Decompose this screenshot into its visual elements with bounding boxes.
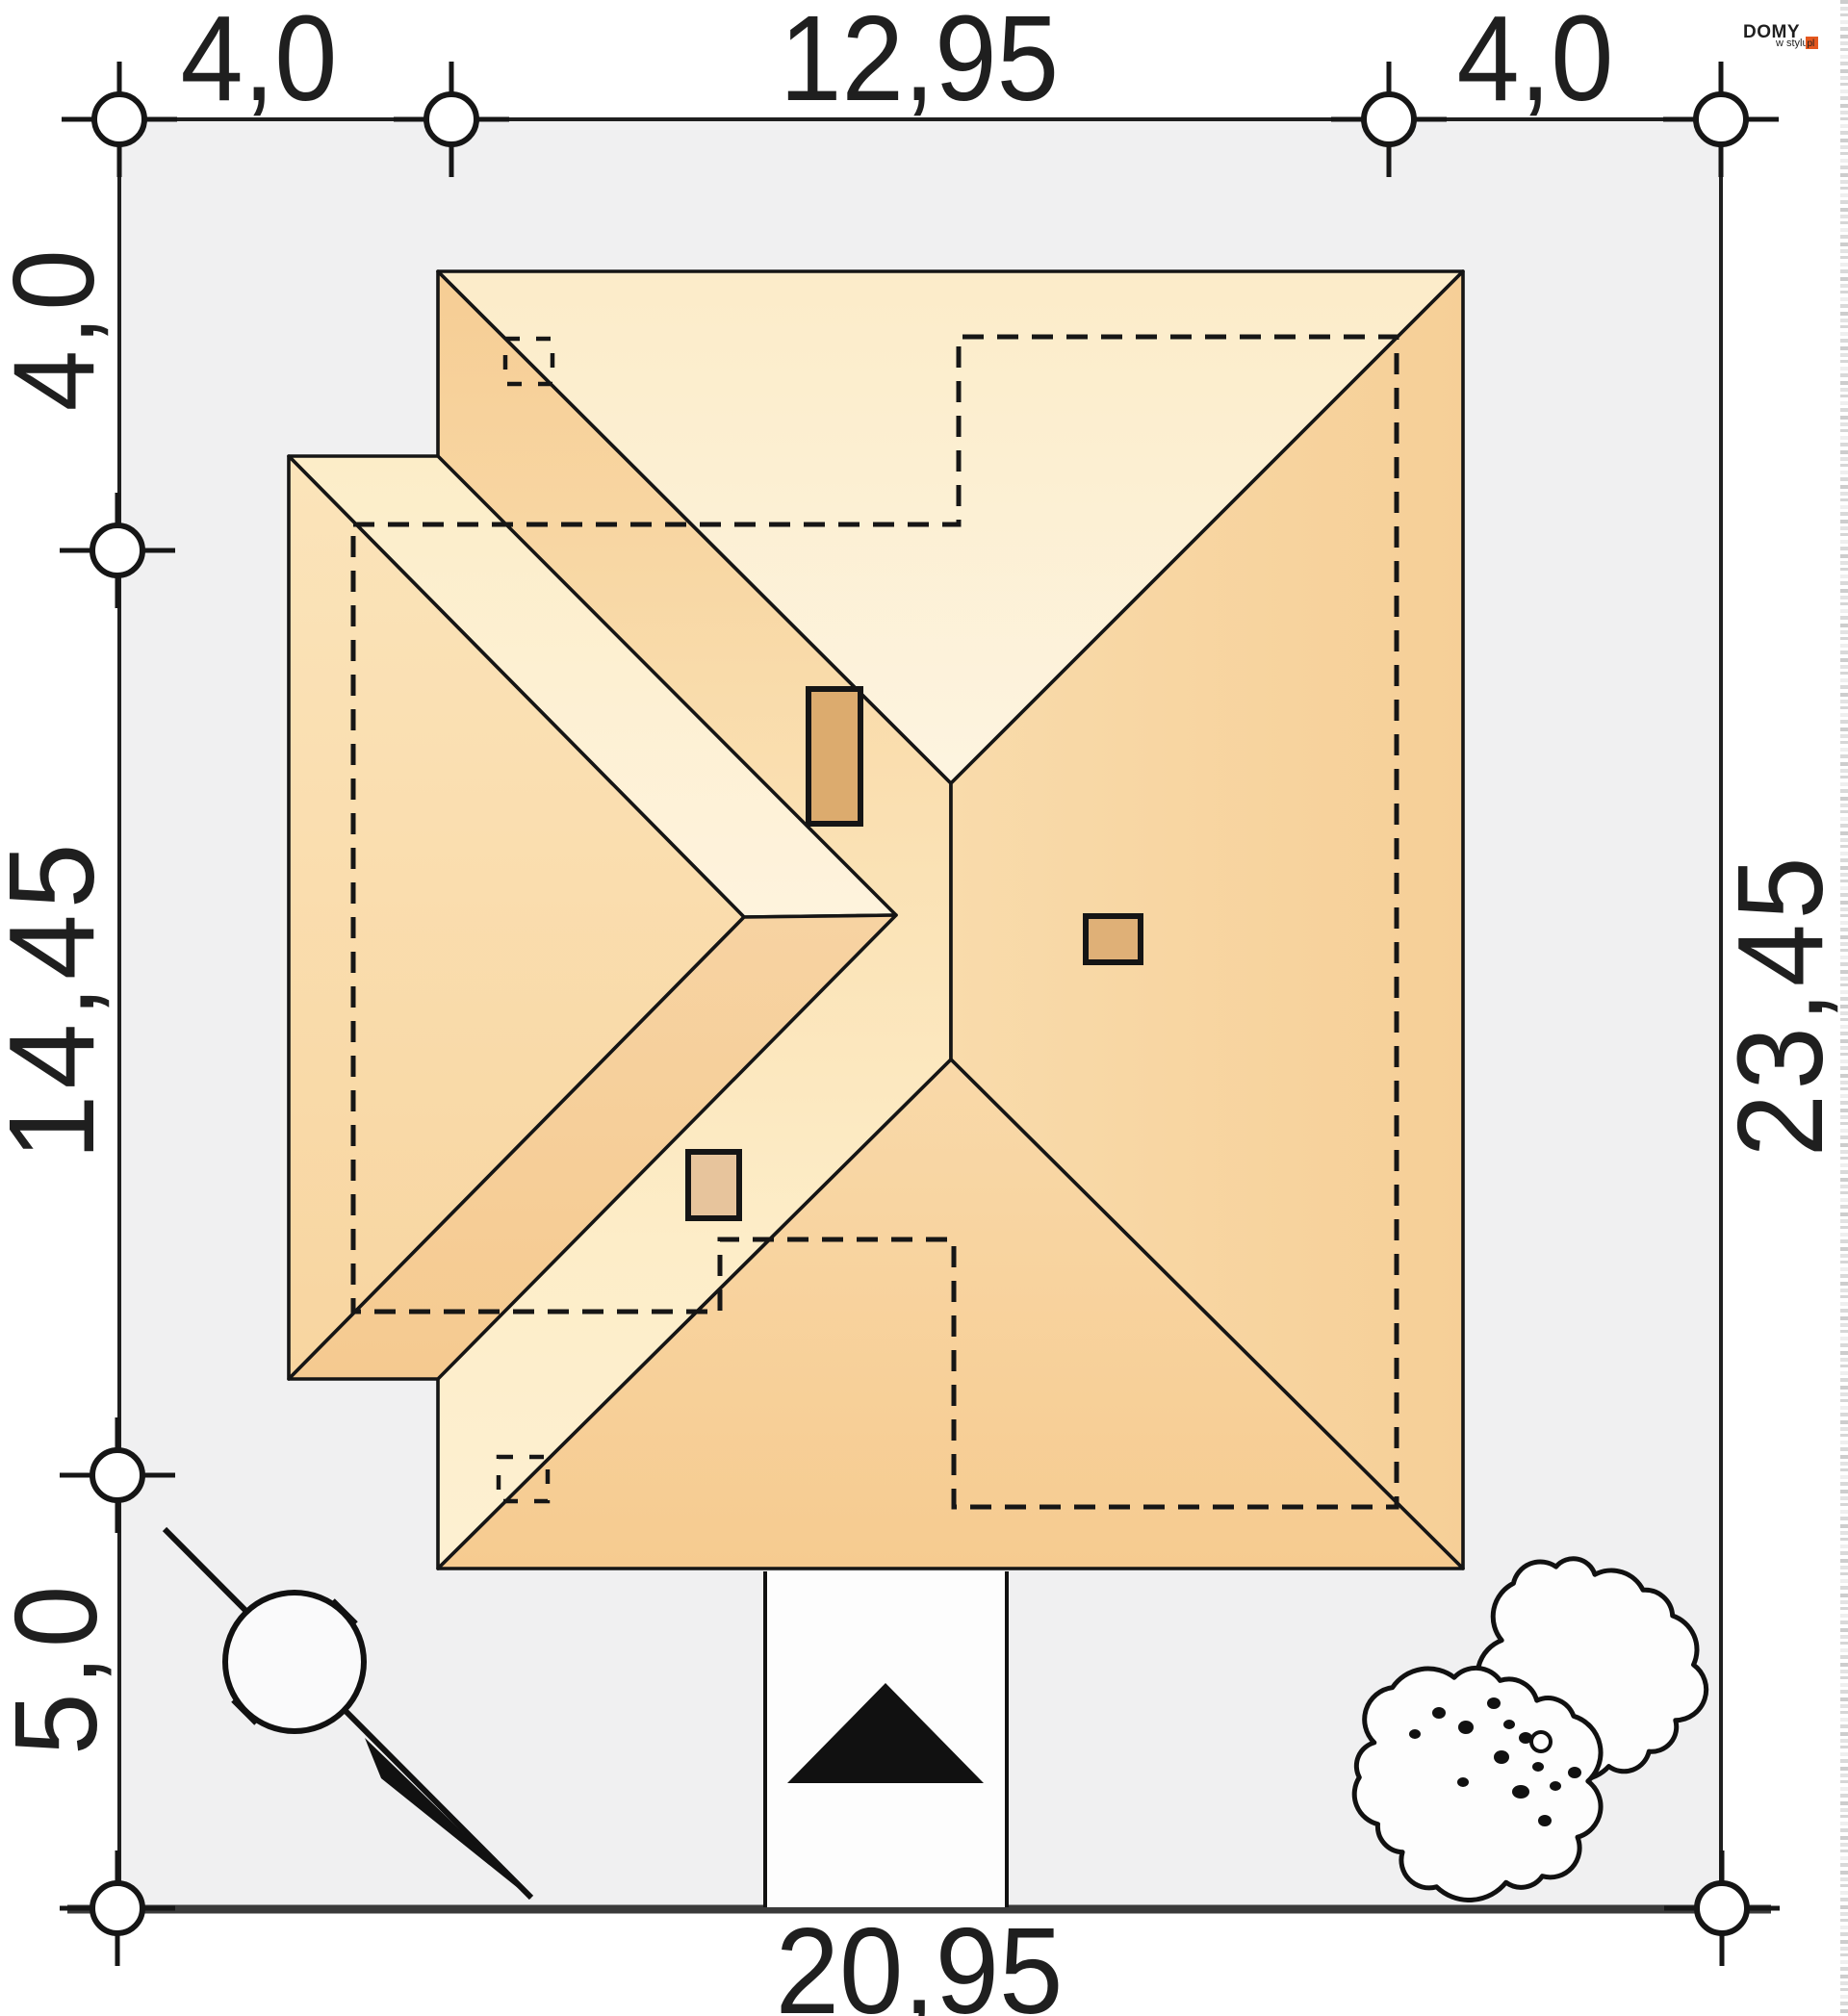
svg-text:20,95: 20,95 — [776, 1903, 1064, 2016]
svg-text:4,0: 4,0 — [1457, 0, 1614, 126]
svg-text:12,95: 12,95 — [780, 0, 1059, 126]
svg-text:4,0: 4,0 — [0, 245, 118, 412]
svg-text:23,45: 23,45 — [1712, 853, 1848, 1157]
svg-text:pl: pl — [1808, 38, 1815, 49]
svg-text:w stylu: w stylu — [1775, 38, 1809, 49]
svg-text:4,0: 4,0 — [181, 0, 338, 126]
svg-text:14,45: 14,45 — [0, 838, 119, 1161]
svg-text:5,0: 5,0 — [0, 1578, 122, 1755]
